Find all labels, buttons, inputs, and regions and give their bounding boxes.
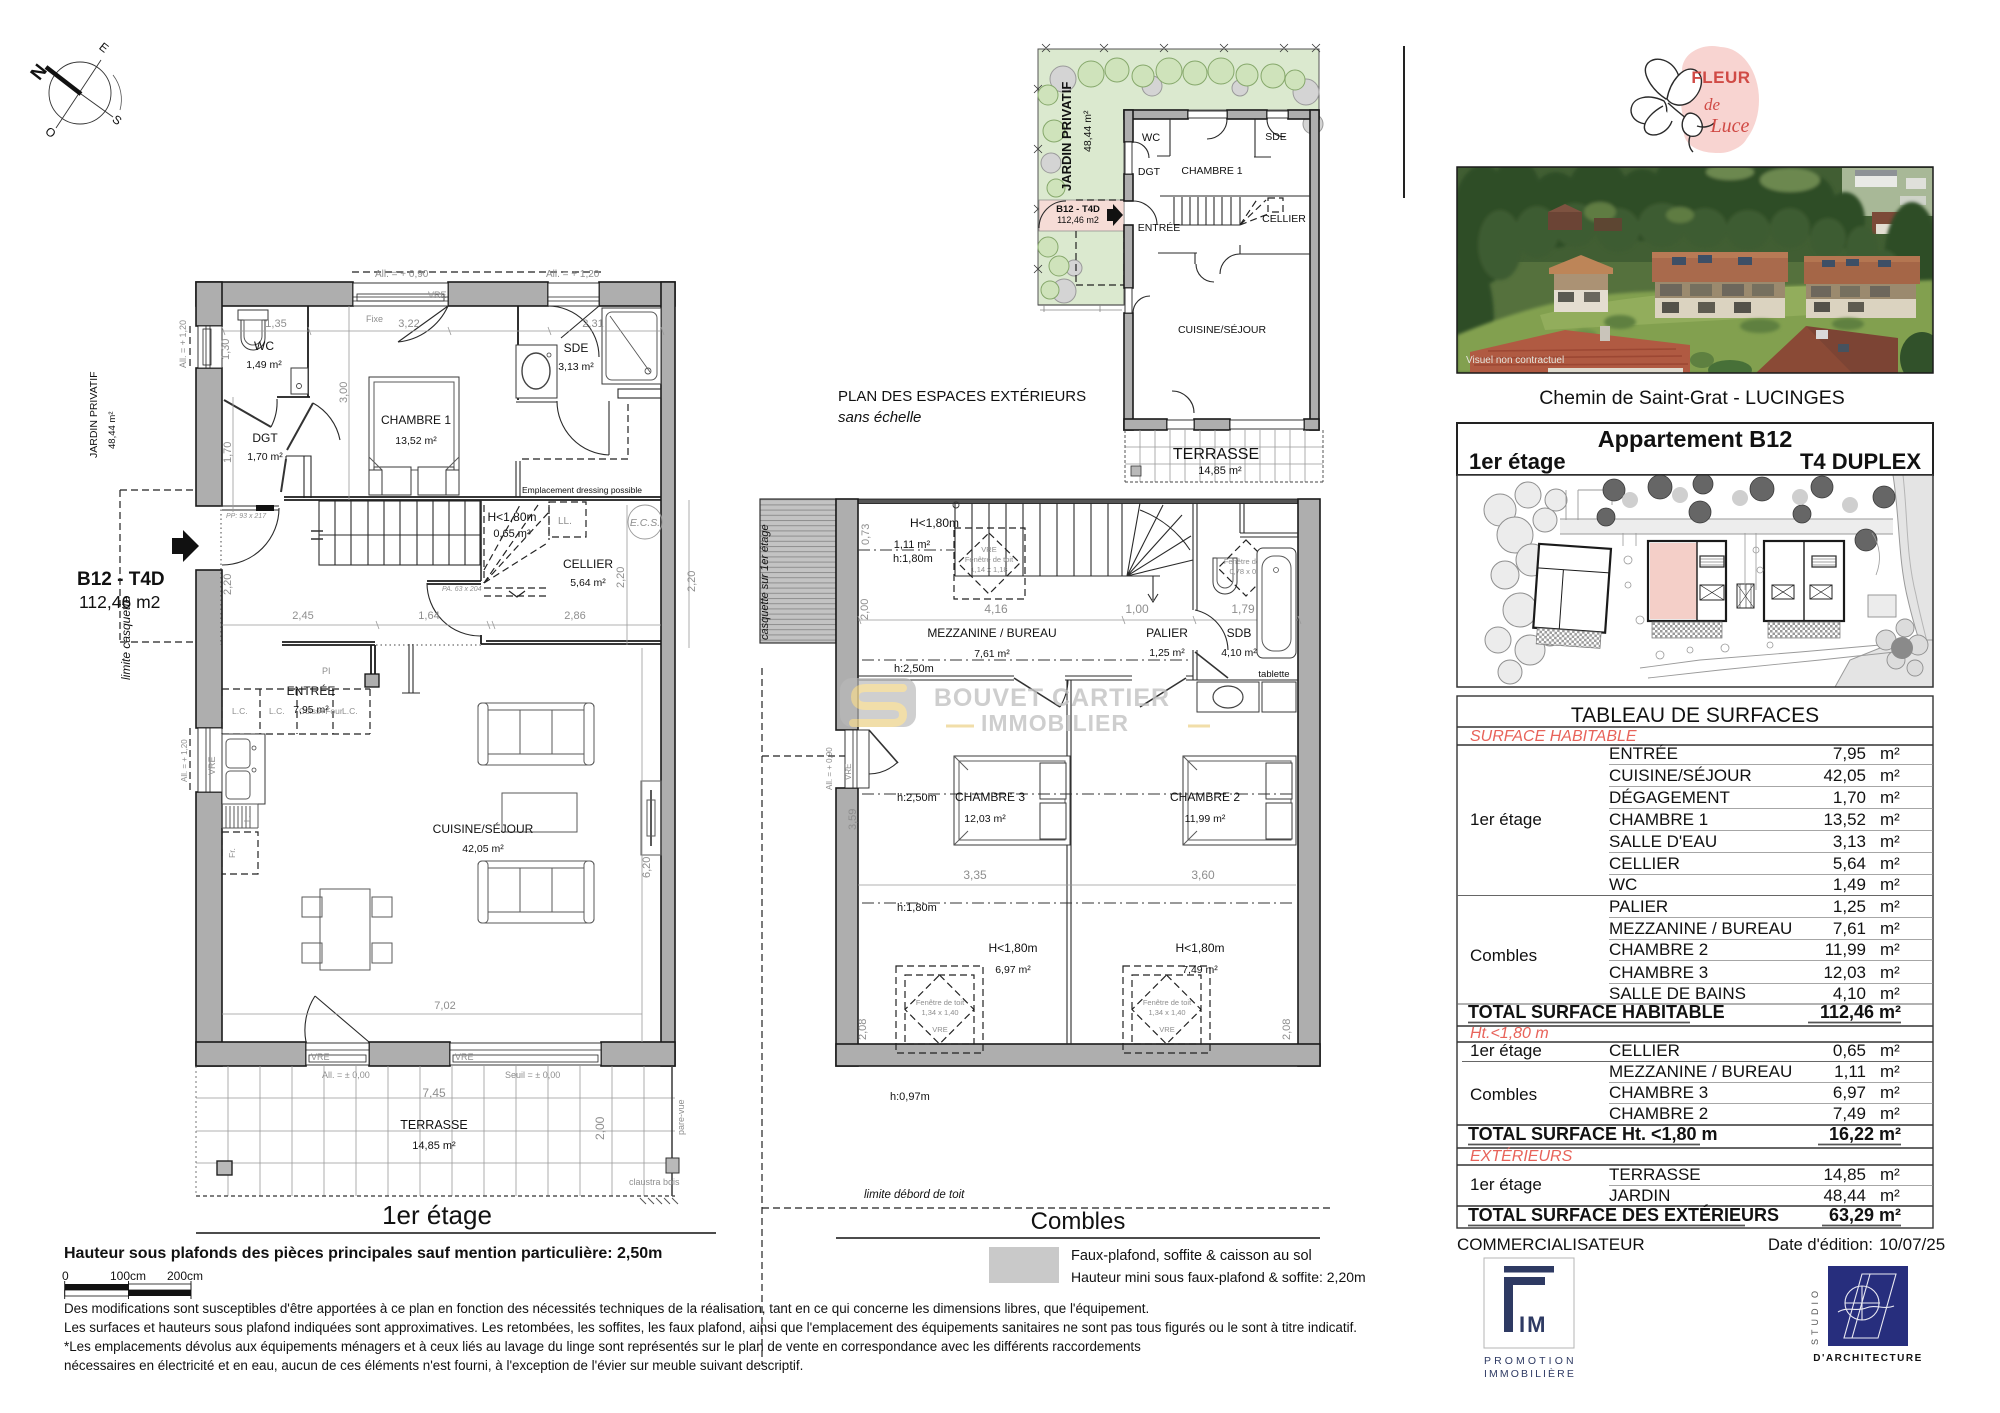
svg-text:3,35: 3,35 — [963, 868, 987, 882]
svg-text:6,97: 6,97 — [1833, 1083, 1866, 1102]
svg-text:4,10: 4,10 — [1833, 984, 1866, 1003]
svg-text:Combles: Combles — [1031, 1208, 1126, 1235]
svg-text:m²: m² — [1880, 1104, 1900, 1123]
svg-text:PA. 63 x 204: PA. 63 x 204 — [442, 586, 482, 593]
svg-text:Seuil = ± 0,00: Seuil = ± 0,00 — [505, 1070, 560, 1080]
svg-text:SDE: SDE — [1265, 131, 1287, 143]
svg-text:L.C.: L.C. — [342, 706, 358, 716]
svg-text:2,00: 2,00 — [859, 599, 871, 620]
svg-text:1er étage: 1er étage — [1470, 1175, 1542, 1194]
svg-text:m²: m² — [1880, 919, 1900, 938]
svg-text:ENTRÉE: ENTRÉE — [1138, 221, 1181, 234]
svg-text:m²: m² — [1880, 788, 1900, 807]
svg-text:14,85: 14,85 — [1823, 1165, 1866, 1184]
svg-text:BOUVET CARTIER: BOUVET CARTIER — [934, 684, 1170, 712]
svg-text:Fenêtre de toit: Fenêtre de toit — [916, 998, 965, 1007]
svg-text:PI: PI — [322, 666, 331, 676]
svg-text:SDB: SDB — [1227, 626, 1252, 640]
svg-text:casquette sur 1er étage: casquette sur 1er étage — [759, 524, 771, 640]
svg-text:Fr.: Fr. — [227, 848, 237, 858]
svg-text:1er étage: 1er étage — [1470, 1041, 1542, 1060]
svg-text:CELLIER: CELLIER — [1262, 213, 1306, 225]
svg-text:m²: m² — [1880, 1165, 1900, 1184]
svg-text:E.C.S.: E.C.S. — [630, 517, 660, 529]
svg-text:PALIER: PALIER — [1609, 897, 1668, 916]
svg-text:m²: m² — [1880, 875, 1900, 894]
svg-text:L.: L. — [243, 815, 252, 822]
svg-text:63,29 m²: 63,29 m² — [1829, 1205, 1901, 1225]
svg-text:MEZZANINE / BUREAU: MEZZANINE / BUREAU — [1609, 1062, 1792, 1081]
svg-text:m²: m² — [1880, 832, 1900, 851]
svg-text:Des modifications sont suscept: Des modifications sont susceptibles d'êt… — [64, 1301, 1149, 1316]
svg-text:STUDIO: STUDIO — [1810, 1287, 1820, 1345]
svg-text:12,03 m²: 12,03 m² — [964, 813, 1006, 825]
svg-text:Emplacement dressing possible: Emplacement dressing possible — [522, 485, 642, 495]
svg-text:Visuel non contractuel: Visuel non contractuel — [1466, 355, 1564, 366]
svg-text:h:1,80m: h:1,80m — [893, 553, 933, 565]
svg-text:m²: m² — [1880, 1041, 1900, 1060]
svg-text:2,08: 2,08 — [1281, 1019, 1293, 1040]
svg-text:m²: m² — [1880, 766, 1900, 785]
svg-text:1,25: 1,25 — [1833, 897, 1866, 916]
svg-text:All. = + 0,90: All. = + 0,90 — [825, 747, 834, 790]
svg-text:m²: m² — [1880, 984, 1900, 1003]
svg-text:m²: m² — [1880, 940, 1900, 959]
svg-text:13,52: 13,52 — [1823, 810, 1866, 829]
svg-text:CHAMBRE 3: CHAMBRE 3 — [1609, 1083, 1708, 1102]
svg-text:limite casquette: limite casquette — [119, 596, 133, 680]
svg-text:1,14 x 1,18: 1,14 x 1,18 — [970, 565, 1007, 574]
svg-text:7,95 m²: 7,95 m² — [293, 704, 329, 716]
svg-text:Combles: Combles — [1470, 946, 1537, 965]
svg-text:CUISINE/SÉJOUR: CUISINE/SÉJOUR — [433, 821, 534, 836]
svg-text:JARDIN PRIVATIF: JARDIN PRIVATIF — [1059, 82, 1074, 191]
svg-text:CHAMBRE 1: CHAMBRE 1 — [1181, 165, 1242, 177]
svg-text:TERRASSE: TERRASSE — [400, 1118, 467, 1132]
svg-text:14,85 m²: 14,85 m² — [412, 1140, 456, 1152]
svg-text:TOTAL SURFACE HABITABLE: TOTAL SURFACE HABITABLE — [1468, 1002, 1725, 1022]
svg-text:T4 DUPLEX: T4 DUPLEX — [1800, 449, 1921, 474]
svg-text:1,35: 1,35 — [265, 318, 286, 330]
svg-text:1,25 m²: 1,25 m² — [1149, 647, 1185, 659]
svg-text:Faux-plafond, soffite & caisso: Faux-plafond, soffite & caisson au sol — [1071, 1248, 1312, 1264]
svg-text:48,44: 48,44 — [1823, 1186, 1866, 1205]
svg-text:VRE: VRE — [844, 764, 853, 780]
svg-text:m²: m² — [1880, 1186, 1900, 1205]
svg-text:4,16: 4,16 — [984, 602, 1008, 616]
svg-text:TERRASSE: TERRASSE — [1173, 446, 1259, 463]
svg-text:Luce: Luce — [1710, 115, 1750, 137]
svg-text:3,60: 3,60 — [1191, 868, 1215, 882]
svg-text:IMMOBILIÈRE: IMMOBILIÈRE — [1484, 1367, 1576, 1380]
svg-text:13,52 m²: 13,52 m² — [395, 435, 437, 447]
svg-text:tablette: tablette — [1258, 669, 1289, 680]
svg-text:TOTAL SURFACE DES EXTÉRIEURS: TOTAL SURFACE DES EXTÉRIEURS — [1468, 1204, 1779, 1225]
svg-text:m²: m² — [1880, 854, 1900, 873]
svg-text:CHAMBRE 3: CHAMBRE 3 — [955, 790, 1025, 804]
svg-text:TERRASSE: TERRASSE — [1609, 1165, 1701, 1184]
svg-text:7,61 m²: 7,61 m² — [974, 648, 1010, 660]
svg-text:200cm: 200cm — [167, 1269, 203, 1283]
svg-text:h:2,50m: h:2,50m — [897, 792, 937, 804]
svg-text:48,44 m²: 48,44 m² — [1082, 110, 1094, 152]
svg-text:H<1,80m: H<1,80m — [988, 941, 1037, 955]
svg-text:CHAMBRE 1: CHAMBRE 1 — [1609, 810, 1708, 829]
svg-text:7,49: 7,49 — [1833, 1104, 1866, 1123]
svg-text:0: 0 — [62, 1269, 69, 1283]
svg-text:Date d'édition:: Date d'édition: — [1768, 1236, 1873, 1254]
svg-text:3,00: 3,00 — [338, 382, 350, 403]
svg-text:TOTAL SURFACE Ht. <1,80 m: TOTAL SURFACE Ht. <1,80 m — [1468, 1124, 1718, 1144]
svg-text:1er étage: 1er étage — [1469, 449, 1566, 474]
svg-text:1,70: 1,70 — [1833, 788, 1866, 807]
svg-text:ENTRÉE: ENTRÉE — [287, 683, 336, 698]
svg-text:1,34 x 1,40: 1,34 x 1,40 — [1148, 1008, 1185, 1017]
svg-text:L.C.: L.C. — [232, 706, 248, 716]
svg-text:PLAN DES ESPACES EXTÉRIEURS: PLAN DES ESPACES EXTÉRIEURS — [838, 388, 1086, 405]
svg-text:PROMOTION: PROMOTION — [1484, 1355, 1577, 1367]
svg-text:DGT: DGT — [252, 431, 278, 445]
svg-text:1,11: 1,11 — [1834, 1062, 1866, 1081]
svg-text:pare-vue: pare-vue — [676, 1099, 686, 1135]
svg-text:limite débord de toit: limite débord de toit — [864, 1189, 965, 1201]
svg-text:7,95: 7,95 — [1833, 744, 1866, 763]
svg-text:Appartement B12: Appartement B12 — [1598, 426, 1793, 452]
svg-text:16,22 m²: 16,22 m² — [1829, 1124, 1901, 1144]
svg-text:ENTRÉE: ENTRÉE — [1609, 744, 1678, 763]
svg-text:1,64: 1,64 — [418, 610, 439, 622]
svg-text:5,64: 5,64 — [1833, 854, 1866, 873]
svg-text:VRE: VRE — [428, 290, 447, 300]
svg-text:12,03: 12,03 — [1823, 963, 1866, 982]
svg-text:CUISINE/SÉJOUR: CUISINE/SÉJOUR — [1178, 323, 1267, 336]
svg-text:SDE: SDE — [564, 341, 589, 355]
svg-text:SURFACE HABITABLE: SURFACE HABITABLE — [1470, 728, 1637, 745]
svg-text:m²: m² — [1880, 810, 1900, 829]
svg-text:3,13 m²: 3,13 m² — [558, 361, 594, 373]
svg-text:1,49 m²: 1,49 m² — [246, 359, 282, 371]
svg-text:1,79: 1,79 — [1231, 602, 1255, 616]
svg-text:IMMOBILIER: IMMOBILIER — [981, 710, 1129, 736]
svg-text:0,65: 0,65 — [1833, 1041, 1866, 1060]
svg-text:0,65 m²: 0,65 m² — [493, 528, 531, 540]
svg-text:3,22: 3,22 — [398, 318, 419, 330]
svg-text:h:1,80m: h:1,80m — [897, 902, 937, 914]
svg-text:claustra bois: claustra bois — [629, 1177, 680, 1187]
svg-text:VRE: VRE — [311, 1052, 330, 1062]
svg-text:0,73: 0,73 — [860, 524, 872, 545]
svg-text:VRE: VRE — [981, 545, 996, 554]
svg-text:Fenêtre de toit: Fenêtre de toit — [1143, 998, 1192, 1007]
svg-text:48,44 m²: 48,44 m² — [107, 412, 118, 450]
svg-text:Fenêtre de toit: Fenêtre de toit — [965, 555, 1014, 564]
svg-text:6,20: 6,20 — [641, 857, 653, 878]
svg-text:WC: WC — [254, 339, 274, 353]
svg-text:MEZZANINE / BUREAU: MEZZANINE / BUREAU — [1609, 919, 1792, 938]
svg-text:SALLE DE BAINS: SALLE DE BAINS — [1609, 984, 1746, 1003]
svg-text:CHAMBRE 1: CHAMBRE 1 — [381, 413, 451, 427]
svg-text:42,05 m²: 42,05 m² — [462, 843, 504, 855]
svg-text:EXTÉRIEURS: EXTÉRIEURS — [1470, 1146, 1573, 1165]
svg-text:1er étage: 1er étage — [382, 1200, 492, 1230]
svg-text:Chemin de Saint-Grat - LUCINGE: Chemin de Saint-Grat - LUCINGES — [1539, 387, 1845, 409]
svg-text:B12 - T4D: B12 - T4D — [77, 569, 165, 590]
svg-text:7,45: 7,45 — [422, 1086, 446, 1100]
svg-text:de: de — [1704, 95, 1721, 114]
svg-text:COMMERCIALISATEUR: COMMERCIALISATEUR — [1457, 1235, 1645, 1254]
svg-text:1er étage: 1er étage — [1470, 810, 1542, 829]
svg-text:PP: 93 x 217: PP: 93 x 217 — [226, 513, 267, 520]
svg-text:IM: IM — [1519, 1312, 1547, 1337]
svg-text:m²: m² — [1880, 963, 1900, 982]
svg-text:h:2,50m: h:2,50m — [894, 663, 934, 675]
svg-text:14,85 m²: 14,85 m² — [1198, 465, 1242, 477]
svg-text:1,49: 1,49 — [1833, 875, 1866, 894]
svg-text:2,31: 2,31 — [582, 318, 603, 330]
svg-text:FLEUR: FLEUR — [1691, 68, 1750, 87]
svg-text:h:0,97m: h:0,97m — [890, 1091, 930, 1103]
svg-text:WC: WC — [1609, 875, 1637, 894]
svg-text:Fixe: Fixe — [366, 314, 383, 324]
svg-text:CHAMBRE 2: CHAMBRE 2 — [1170, 790, 1240, 804]
svg-text:100cm: 100cm — [110, 1269, 146, 1283]
svg-text:*Les emplacements dévolus aux: *Les emplacements dévolus aux équipement… — [64, 1339, 1141, 1354]
svg-text:VRE: VRE — [455, 1052, 474, 1062]
svg-text:TABLEAU DE SURFACES: TABLEAU DE SURFACES — [1571, 704, 1819, 727]
svg-text:1,11 m²: 1,11 m² — [894, 539, 931, 551]
svg-text:11,99: 11,99 — [1825, 940, 1866, 959]
svg-text:DÉGAGEMENT: DÉGAGEMENT — [1609, 788, 1730, 807]
svg-text:11,99 m²: 11,99 m² — [1185, 813, 1226, 825]
svg-text:nécessaires en électricité et: nécessaires en électricité et en eau, au… — [64, 1358, 803, 1373]
svg-text:Hauteur sous plafonds des pièc: Hauteur sous plafonds des pièces princip… — [64, 1245, 662, 1262]
svg-text:JARDIN PRIVATIF: JARDIN PRIVATIF — [88, 371, 100, 458]
svg-text:3,13: 3,13 — [1833, 832, 1866, 851]
svg-text:2,20: 2,20 — [222, 574, 234, 595]
svg-text:2,00: 2,00 — [593, 1116, 607, 1140]
svg-text:2,86: 2,86 — [564, 610, 585, 622]
svg-text:2,20: 2,20 — [615, 567, 627, 588]
svg-text:CHAMBRE 2: CHAMBRE 2 — [1609, 940, 1708, 959]
svg-text:WC: WC — [1142, 132, 1160, 144]
svg-text:2,08: 2,08 — [857, 1019, 869, 1040]
svg-text:1,00: 1,00 — [1125, 602, 1149, 616]
svg-text:PALIER: PALIER — [1146, 626, 1188, 640]
svg-text:CELLIER: CELLIER — [1609, 854, 1680, 873]
svg-text:MEZZANINE / BUREAU: MEZZANINE / BUREAU — [927, 626, 1056, 640]
svg-text:42,05: 42,05 — [1823, 766, 1866, 785]
svg-text:D'ARCHITECTURE: D'ARCHITECTURE — [1813, 1353, 1923, 1364]
svg-text:1,70: 1,70 — [222, 442, 234, 463]
svg-text:10/07/25: 10/07/25 — [1879, 1235, 1945, 1254]
svg-text:m²: m² — [1880, 897, 1900, 916]
svg-text:2,45: 2,45 — [292, 610, 313, 622]
svg-text:All. = ± 0,00: All. = ± 0,00 — [322, 1070, 370, 1080]
svg-text:JARDIN: JARDIN — [1609, 1186, 1670, 1205]
svg-text:3,59: 3,59 — [847, 809, 859, 830]
svg-text:VRE: VRE — [932, 1025, 947, 1034]
svg-text:H<1,80m: H<1,80m — [910, 516, 959, 530]
svg-text:1,70 m²: 1,70 m² — [247, 451, 283, 463]
svg-text:H<1,80m: H<1,80m — [487, 510, 536, 524]
svg-text:7,61: 7,61 — [1833, 919, 1866, 938]
svg-text:4,10 m²: 4,10 m² — [1221, 647, 1257, 659]
svg-text:All. = + 1,20: All. = + 1,20 — [178, 320, 188, 368]
svg-text:All. = + 0,90: All. = + 0,90 — [375, 269, 429, 280]
svg-text:CHAMBRE 3: CHAMBRE 3 — [1609, 963, 1708, 982]
svg-text:CELLIER: CELLIER — [563, 557, 613, 571]
svg-text:m²: m² — [1880, 1083, 1900, 1102]
svg-text:Les surfaces et hauteurs sous: Les surfaces et hauteurs sous plafond in… — [64, 1320, 1357, 1335]
svg-text:112,46 m2: 112,46 m2 — [1057, 215, 1099, 225]
svg-text:5,64 m²: 5,64 m² — [570, 577, 606, 589]
svg-text:1,34 x 1,40: 1,34 x 1,40 — [921, 1008, 958, 1017]
svg-text:1,30: 1,30 — [220, 339, 232, 360]
svg-text:LL.: LL. — [558, 516, 572, 527]
svg-text:112,46 m²: 112,46 m² — [1820, 1002, 1901, 1022]
svg-text:Combles: Combles — [1470, 1085, 1537, 1104]
svg-text:B12 - T4D: B12 - T4D — [1056, 204, 1100, 215]
svg-text:All. = + 1,20: All. = + 1,20 — [546, 269, 600, 280]
svg-text:VRE: VRE — [207, 756, 217, 775]
svg-text:All. = + 1,20: All. = + 1,20 — [180, 739, 189, 782]
svg-text:m²: m² — [1880, 1062, 1900, 1081]
svg-text:7,02: 7,02 — [434, 1000, 455, 1012]
svg-text:H<1,80m: H<1,80m — [1175, 941, 1224, 955]
svg-text:DGT: DGT — [1138, 166, 1161, 178]
svg-text:CUISINE/SÉJOUR: CUISINE/SÉJOUR — [1609, 766, 1752, 785]
svg-text:L.C.: L.C. — [269, 706, 285, 716]
svg-text:sans échelle: sans échelle — [838, 409, 921, 426]
svg-text:CELLIER: CELLIER — [1609, 1041, 1680, 1060]
svg-text:CHAMBRE 2: CHAMBRE 2 — [1609, 1104, 1708, 1123]
svg-text:m²: m² — [1880, 744, 1900, 763]
svg-text:2,20: 2,20 — [686, 571, 698, 592]
svg-text:6,97 m²: 6,97 m² — [995, 964, 1031, 976]
svg-text:VRE: VRE — [1159, 1025, 1174, 1034]
svg-text:Hauteur mini sous faux-plafond: Hauteur mini sous faux-plafond & soffite… — [1071, 1269, 1366, 1285]
svg-text:Ht.<1,80 m: Ht.<1,80 m — [1470, 1025, 1549, 1042]
svg-text:SALLE D'EAU: SALLE D'EAU — [1609, 832, 1717, 851]
